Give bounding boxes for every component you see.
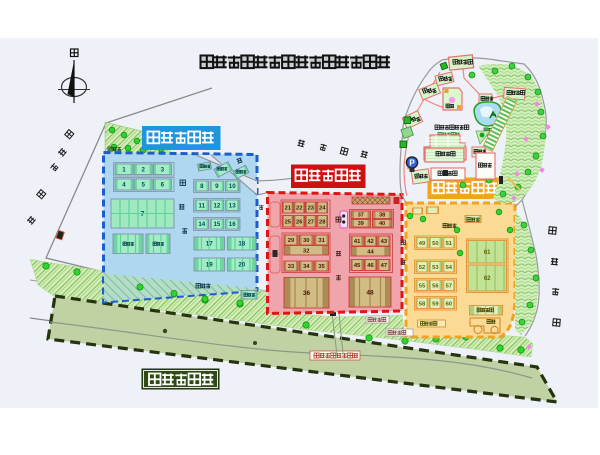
- svg-text:27: 27: [308, 219, 314, 225]
- svg-text:52: 52: [419, 265, 425, 271]
- svg-text:13: 13: [229, 203, 236, 210]
- svg-text:42: 42: [367, 239, 373, 245]
- svg-text:58: 58: [419, 301, 426, 307]
- svg-text:10: 10: [229, 183, 236, 190]
- svg-text:P: P: [409, 158, 415, 167]
- svg-text:33: 33: [288, 264, 295, 270]
- svg-text:21: 21: [285, 206, 292, 212]
- svg-text:12: 12: [213, 203, 220, 210]
- svg-text:51: 51: [446, 241, 453, 247]
- svg-text:26: 26: [296, 219, 303, 225]
- svg-text:28: 28: [319, 219, 326, 225]
- svg-text:15: 15: [213, 221, 220, 228]
- svg-text:60: 60: [446, 301, 452, 307]
- svg-text:38: 38: [379, 213, 385, 219]
- svg-text:37: 37: [358, 213, 364, 219]
- svg-text:43: 43: [381, 239, 388, 245]
- svg-text:30: 30: [303, 238, 309, 244]
- svg-text:25: 25: [285, 219, 292, 225]
- svg-text:31: 31: [318, 238, 325, 244]
- svg-text:36: 36: [303, 290, 311, 297]
- svg-text:44: 44: [367, 249, 374, 255]
- svg-text:48: 48: [366, 289, 374, 296]
- svg-text:1: 1: [122, 167, 126, 174]
- svg-text:3: 3: [161, 167, 165, 174]
- svg-text:35: 35: [318, 264, 325, 270]
- svg-text:45: 45: [354, 263, 361, 269]
- svg-text:46: 46: [367, 263, 374, 269]
- svg-text:57: 57: [446, 283, 452, 289]
- svg-text:5: 5: [141, 182, 145, 189]
- svg-text:22: 22: [296, 206, 302, 212]
- svg-text:39: 39: [358, 221, 364, 227]
- svg-text:54: 54: [446, 265, 453, 271]
- svg-text:16: 16: [229, 221, 236, 228]
- svg-text:61: 61: [484, 250, 491, 256]
- svg-text:11: 11: [199, 203, 206, 210]
- svg-text:62: 62: [484, 276, 491, 282]
- svg-text:20: 20: [238, 262, 245, 269]
- svg-text:23: 23: [308, 206, 315, 212]
- svg-text:59: 59: [432, 301, 439, 307]
- svg-text:19: 19: [206, 262, 213, 269]
- svg-text:4: 4: [122, 182, 126, 189]
- svg-text:53: 53: [432, 265, 439, 271]
- svg-text:8: 8: [200, 183, 204, 190]
- svg-text:50: 50: [432, 241, 438, 247]
- svg-text:29: 29: [288, 238, 295, 244]
- svg-text:49: 49: [419, 241, 426, 247]
- svg-text:34: 34: [303, 264, 310, 270]
- svg-text:41: 41: [354, 239, 361, 245]
- svg-text:40: 40: [379, 221, 385, 227]
- svg-text:47: 47: [381, 263, 387, 269]
- svg-text:14: 14: [198, 221, 205, 228]
- svg-text:32: 32: [303, 248, 309, 254]
- svg-text:17: 17: [206, 241, 213, 248]
- svg-text:6: 6: [161, 182, 165, 189]
- svg-text:18: 18: [238, 241, 245, 248]
- svg-text:9: 9: [215, 183, 219, 190]
- svg-text:56: 56: [432, 283, 439, 289]
- svg-text:55: 55: [419, 283, 426, 289]
- svg-text:24: 24: [319, 206, 326, 212]
- svg-text:2: 2: [141, 167, 145, 174]
- svg-text:7: 7: [141, 211, 145, 218]
